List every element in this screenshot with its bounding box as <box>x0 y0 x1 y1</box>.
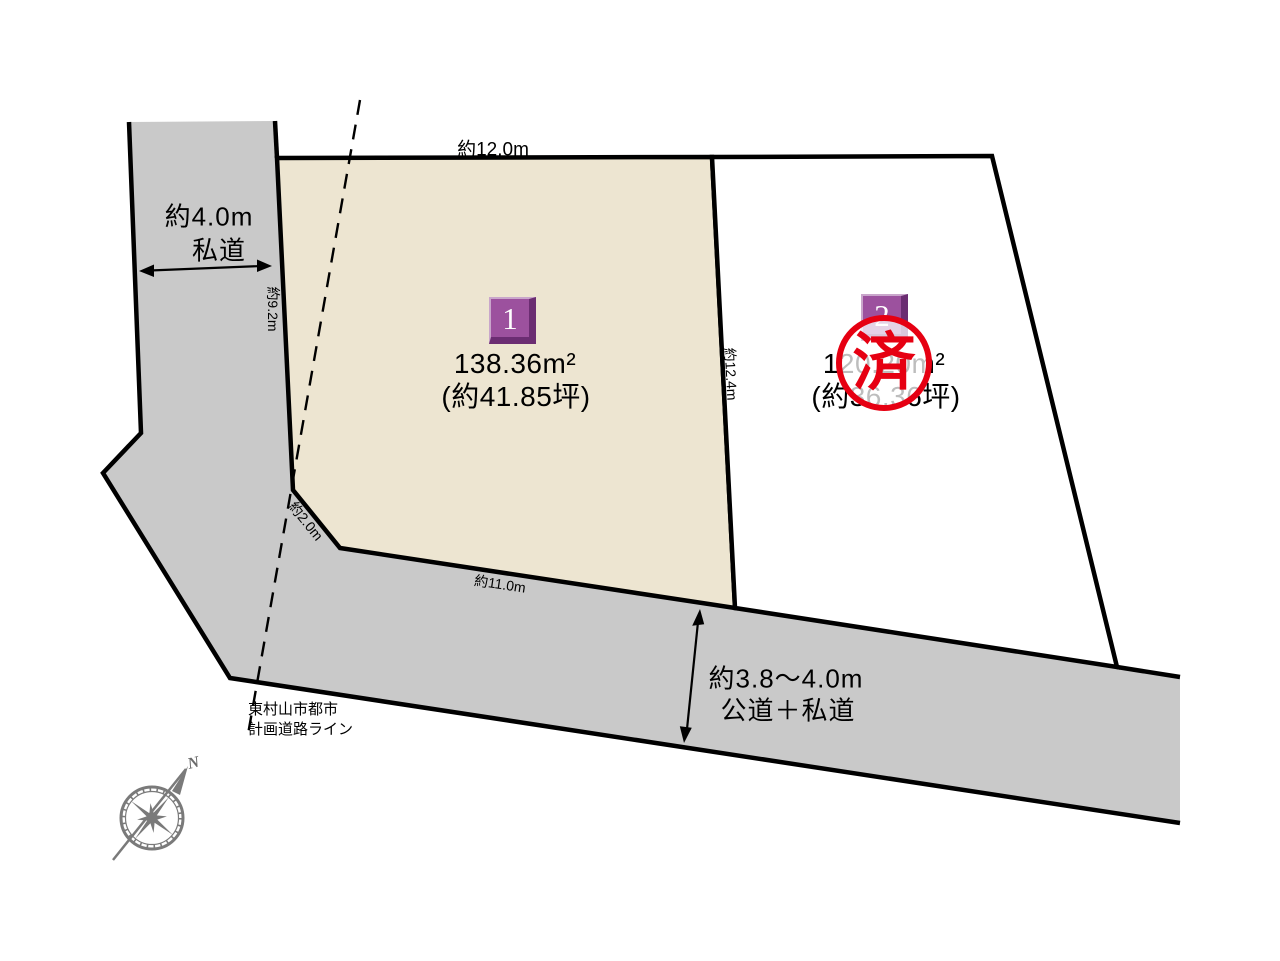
left-road-right-edge-upper <box>275 121 277 158</box>
compass-north-label: N <box>185 753 203 773</box>
compass-star <box>131 797 173 839</box>
planning-line-label-line1: 東村山市都市 <box>248 700 353 720</box>
dim-divider: 約12.4m <box>720 347 743 401</box>
land-plot-diagram: N 約12.0m 約9.2m 約2.0m 約11.0m 約12.4m 約4.0m… <box>0 0 1280 961</box>
bottom-road-type-label: 公道＋私道 <box>720 691 855 728</box>
plot-map-drawing: N <box>0 0 1280 961</box>
plot1-area-tsubo: (約41.85坪) <box>441 375 590 415</box>
planning-line-label-line2: 計画道路ライン <box>248 720 353 740</box>
dim-plot1-left: 約9.2m <box>263 286 283 331</box>
sold-stamp: 済 <box>836 315 932 411</box>
dim-plot1-top: 約12.0m <box>457 135 529 162</box>
compass-north-arrowhead <box>172 766 188 795</box>
sold-stamp-text: 済 <box>853 332 916 395</box>
compass-rose: N <box>113 753 203 860</box>
planning-line-label: 東村山市都市 計画道路ライン <box>248 700 353 740</box>
plot1-number-chip: 1 <box>489 297 536 344</box>
plot1-number: 1 <box>502 303 518 334</box>
left-road-type-label: 私道 <box>192 231 246 268</box>
left-road-width-label: 約4.0m <box>165 197 254 234</box>
